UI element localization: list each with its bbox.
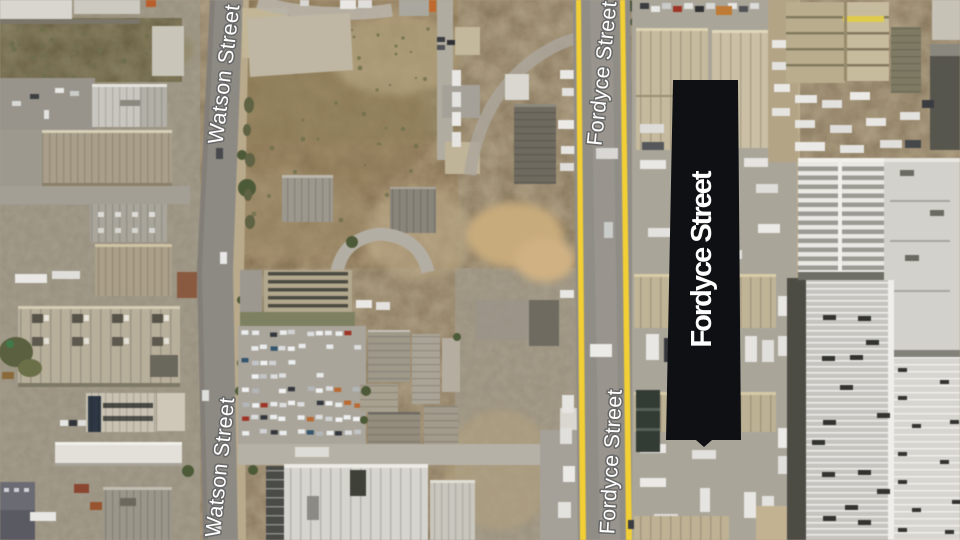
svg-text:Fordyce Street: Fordyce Street <box>686 170 718 347</box>
